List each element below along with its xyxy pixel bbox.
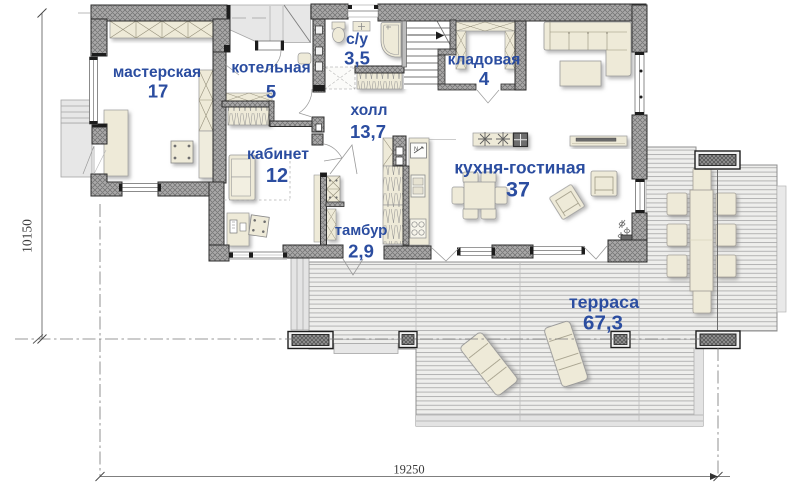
svg-text:N: N [414, 147, 418, 153]
svg-text:4: 4 [479, 68, 490, 89]
svg-text:кладовая: кладовая [448, 52, 521, 69]
svg-text:с/у: с/у [346, 31, 368, 48]
svg-text:10150: 10150 [20, 219, 35, 253]
svg-text:19250: 19250 [393, 463, 424, 477]
svg-text:холл: холл [350, 102, 387, 119]
svg-text:2,9: 2,9 [348, 241, 374, 262]
svg-text:67,3: 67,3 [583, 312, 623, 335]
svg-text:кабинет: кабинет [247, 146, 309, 163]
svg-text:5: 5 [266, 81, 276, 102]
svg-text:тамбур: тамбур [335, 223, 388, 239]
svg-text:мастерская: мастерская [113, 64, 201, 81]
svg-text:котельная: котельная [231, 60, 310, 77]
svg-text:13,7: 13,7 [350, 121, 386, 142]
svg-text:терраса: терраса [569, 292, 639, 312]
svg-text:17: 17 [148, 81, 169, 102]
svg-text:кухня-гостиная: кухня-гостиная [454, 158, 585, 178]
svg-text:37: 37 [506, 178, 530, 202]
svg-text:3,5: 3,5 [344, 48, 370, 69]
svg-text:12: 12 [266, 165, 288, 187]
